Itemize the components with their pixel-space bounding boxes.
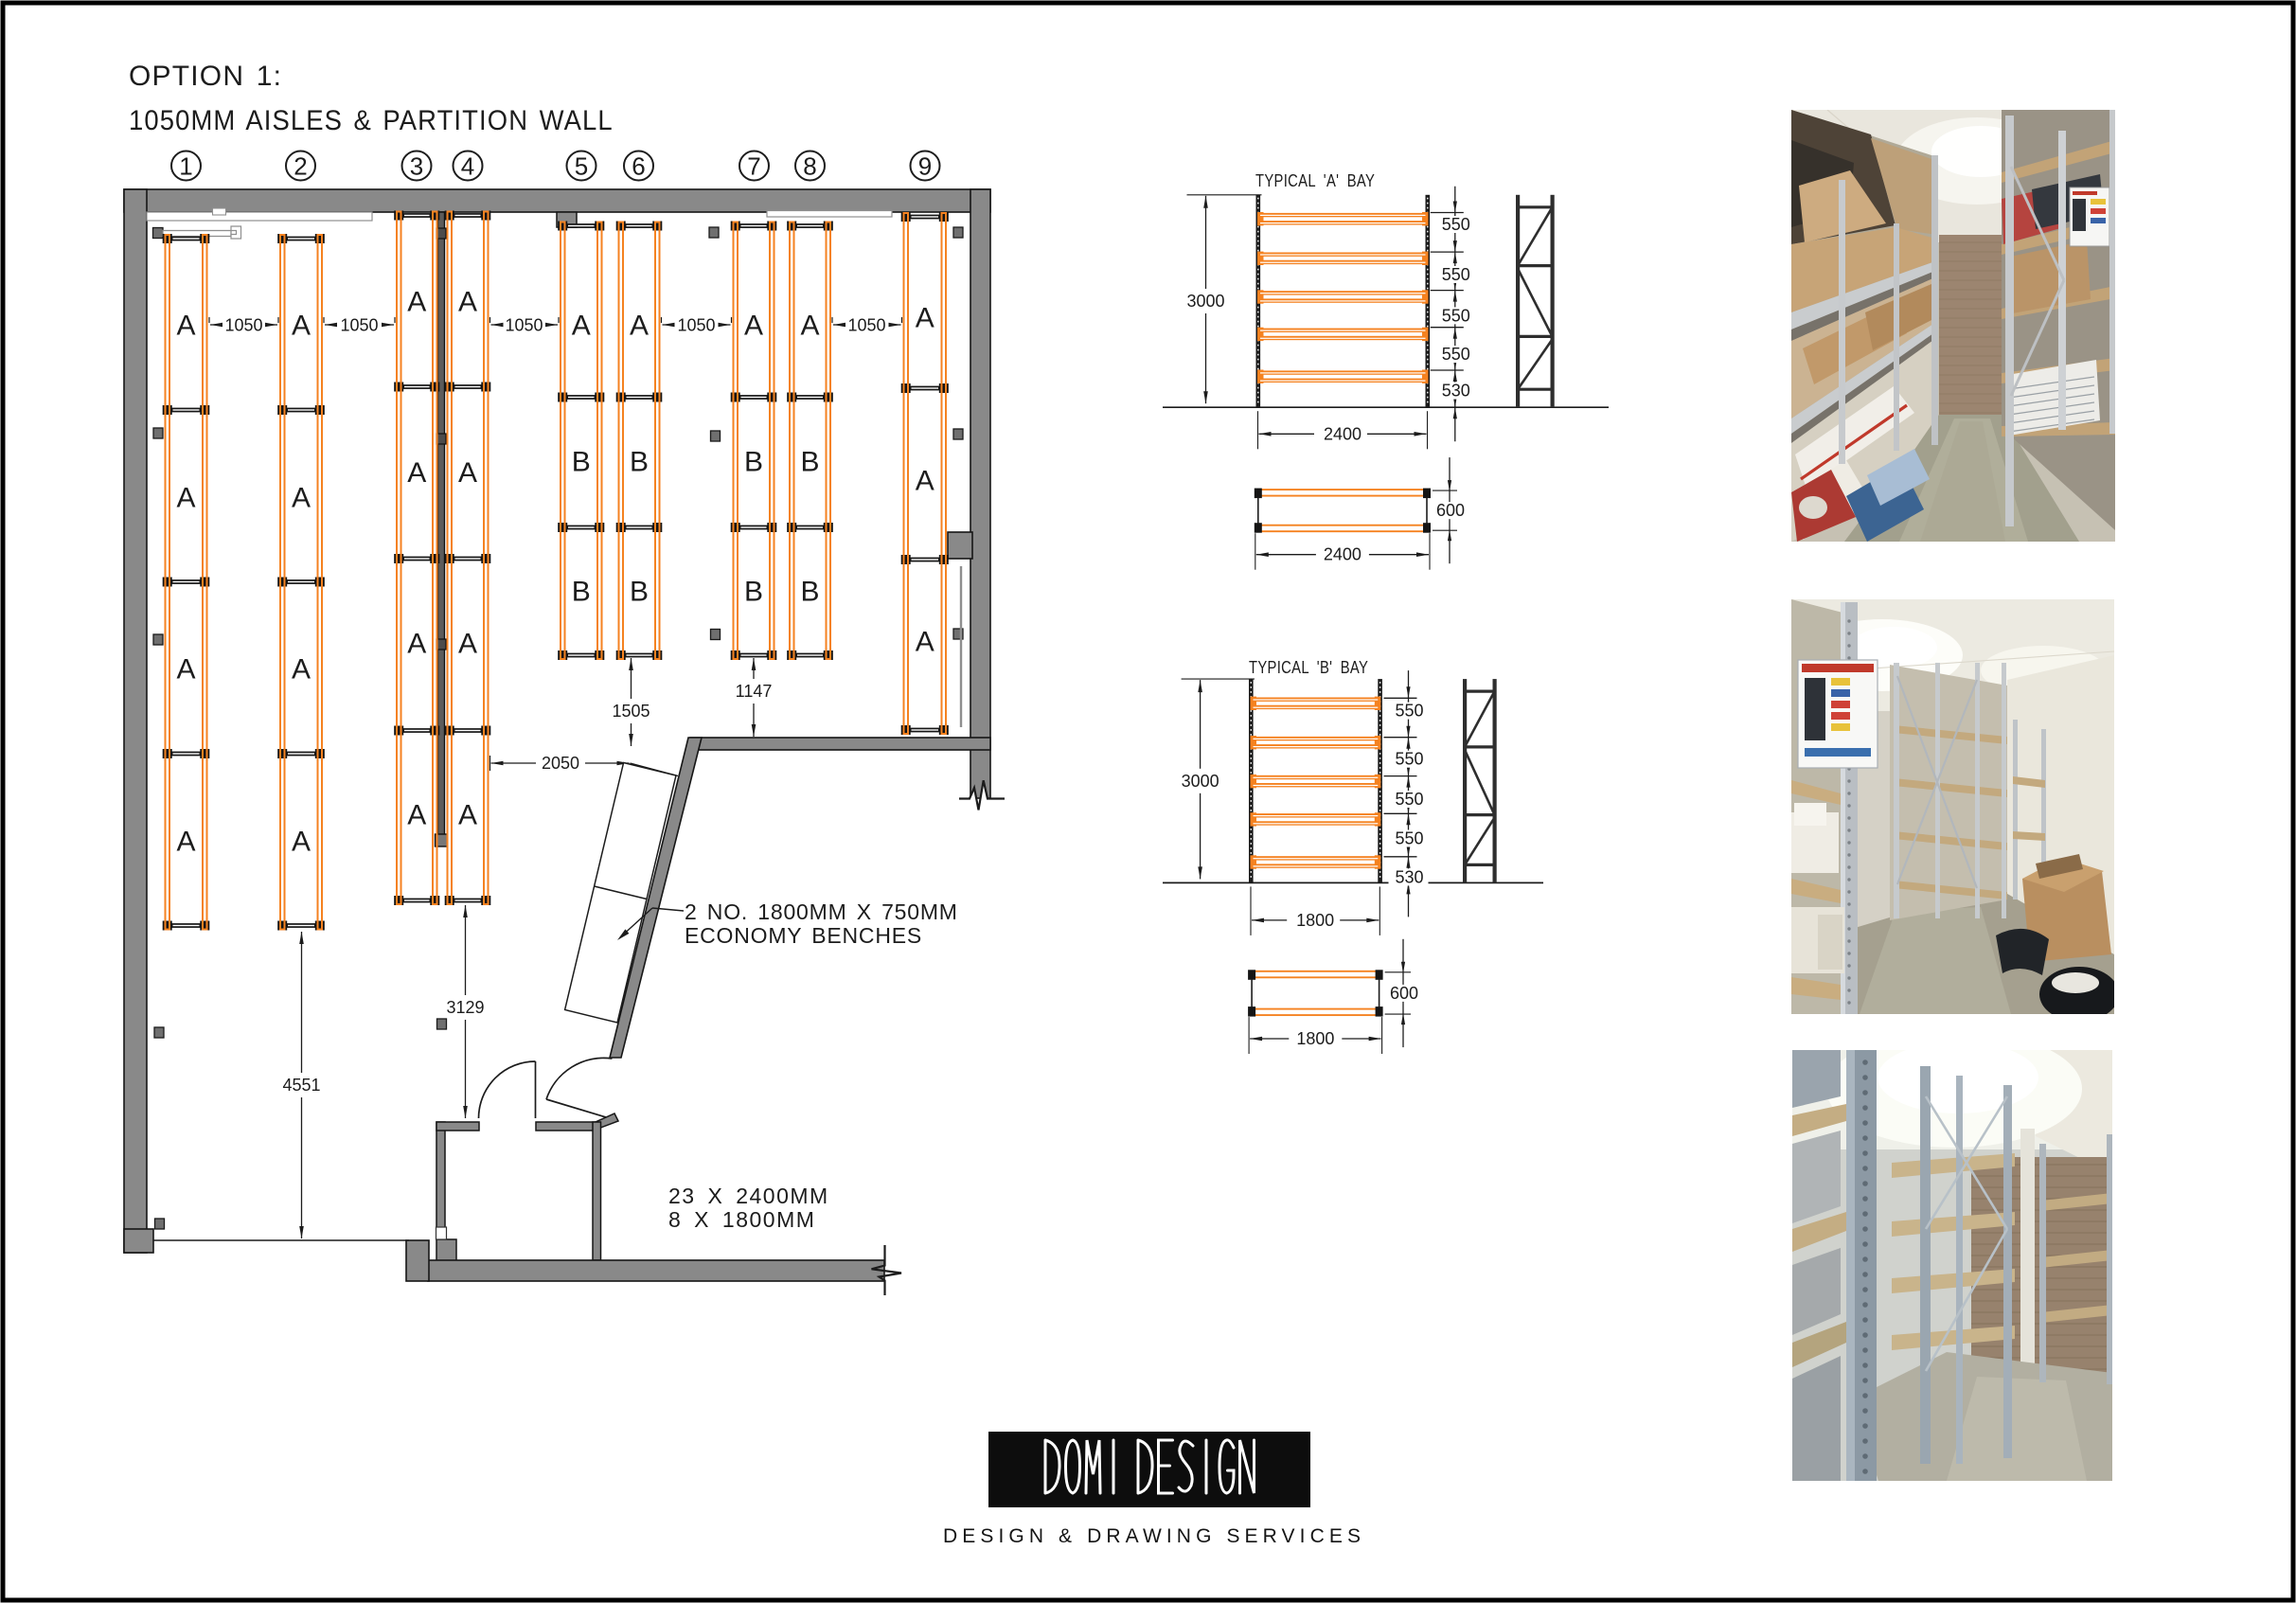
svg-text:A: A	[407, 457, 426, 489]
svg-text:A: A	[458, 800, 477, 831]
svg-text:1: 1	[179, 152, 192, 181]
svg-text:A: A	[292, 483, 311, 514]
svg-text:1050: 1050	[224, 316, 262, 335]
svg-text:A: A	[458, 287, 477, 318]
svg-text:A: A	[176, 827, 195, 858]
svg-text:A: A	[572, 311, 591, 342]
svg-text:B: B	[800, 577, 819, 608]
svg-text:600: 600	[1390, 984, 1418, 1003]
svg-text:A: A	[458, 629, 477, 660]
svg-text:B: B	[800, 447, 819, 478]
svg-text:A: A	[458, 457, 477, 489]
svg-text:A: A	[916, 627, 934, 658]
svg-text:A: A	[630, 311, 649, 342]
svg-text:A: A	[407, 287, 426, 318]
svg-text:A: A	[744, 311, 763, 342]
svg-text:B: B	[572, 577, 591, 608]
svg-text:B: B	[630, 577, 649, 608]
svg-text:4551: 4551	[282, 1076, 320, 1095]
svg-text:3: 3	[410, 152, 423, 181]
svg-text:A: A	[292, 827, 311, 858]
svg-text:4: 4	[461, 152, 474, 181]
svg-text:6: 6	[632, 152, 645, 181]
svg-text:2400: 2400	[1324, 545, 1362, 564]
svg-text:A: A	[292, 311, 311, 342]
svg-text:7: 7	[747, 152, 760, 181]
svg-text:9: 9	[918, 152, 932, 181]
svg-text:1050MM AISLES & PARTITION: 1050MM AISLES & PARTITION WALL	[129, 105, 614, 136]
svg-text:A: A	[292, 654, 311, 686]
svg-text:530: 530	[1442, 382, 1470, 401]
svg-text:2: 2	[294, 152, 307, 181]
svg-text:ECONOMY BENCHES: ECONOMY BENCHES	[685, 923, 922, 948]
svg-text:530: 530	[1395, 867, 1423, 886]
svg-text:A: A	[916, 466, 934, 497]
svg-text:3000: 3000	[1182, 772, 1219, 791]
svg-text:550: 550	[1395, 750, 1423, 769]
svg-text:1050: 1050	[677, 316, 715, 335]
svg-text:550: 550	[1442, 265, 1470, 284]
svg-text:1505: 1505	[612, 702, 650, 721]
svg-text:5: 5	[575, 152, 588, 181]
svg-text:B: B	[630, 447, 649, 478]
svg-text:1800: 1800	[1296, 911, 1334, 930]
svg-text:2 NO. 1800MM X 750MM: 2 NO. 1800MM X 750MM	[685, 899, 958, 924]
svg-text:550: 550	[1442, 215, 1470, 234]
svg-text:DESIGN & DRAWING SERVICES: DESIGN & DRAWING SERVICES	[943, 1525, 1365, 1547]
svg-text:2400: 2400	[1324, 424, 1362, 443]
svg-text:550: 550	[1442, 306, 1470, 325]
svg-text:A: A	[176, 311, 195, 342]
svg-text:A: A	[176, 654, 195, 686]
svg-text:550: 550	[1442, 345, 1470, 364]
svg-text:550: 550	[1395, 829, 1423, 848]
svg-text:8 X 1800MM: 8 X 1800MM	[668, 1207, 815, 1232]
svg-text:A: A	[176, 483, 195, 514]
svg-text:8: 8	[803, 152, 816, 181]
svg-text:3129: 3129	[446, 998, 484, 1017]
svg-text:OPTION 1:: OPTION 1:	[129, 61, 282, 92]
svg-text:TYPICAL 'B' BAY: TYPICAL 'B' BAY	[1249, 657, 1368, 677]
svg-text:A: A	[916, 303, 934, 334]
svg-text:A: A	[407, 800, 426, 831]
svg-text:1147: 1147	[736, 682, 773, 701]
svg-text:2050: 2050	[542, 754, 579, 773]
svg-text:23 X 2400MM: 23 X 2400MM	[668, 1184, 829, 1208]
svg-text:1800: 1800	[1296, 1029, 1334, 1048]
svg-text:550: 550	[1395, 790, 1423, 809]
svg-text:A: A	[800, 311, 819, 342]
svg-text:600: 600	[1436, 501, 1465, 520]
svg-text:550: 550	[1395, 702, 1423, 721]
svg-text:TYPICAL 'A' BAY: TYPICAL 'A' BAY	[1255, 170, 1375, 190]
svg-text:3000: 3000	[1186, 292, 1224, 311]
svg-text:B: B	[572, 447, 591, 478]
svg-text:A: A	[407, 629, 426, 660]
svg-text:1050: 1050	[505, 316, 543, 335]
svg-text:1050: 1050	[340, 316, 378, 335]
svg-text:1050: 1050	[847, 316, 885, 335]
svg-text:B: B	[744, 577, 763, 608]
svg-text:B: B	[744, 447, 763, 478]
